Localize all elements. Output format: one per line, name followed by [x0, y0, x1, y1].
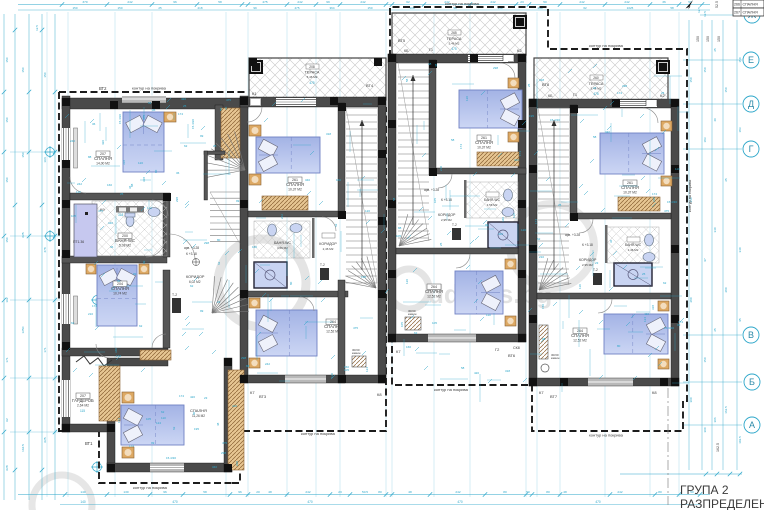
- svg-text:420: 420: [474, 371, 479, 375]
- svg-text:58: 58: [218, 0, 222, 4]
- svg-text:195: 195: [194, 427, 199, 431]
- svg-text:СПАЛНЯ: СПАЛНЯ: [94, 156, 112, 161]
- svg-text:96: 96: [238, 490, 242, 494]
- svg-text:ВТ5: ВТ5: [398, 38, 406, 43]
- svg-text:110: 110: [675, 167, 680, 171]
- svg-text:420: 420: [181, 97, 186, 101]
- svg-text:420: 420: [644, 312, 649, 316]
- svg-text:88: 88: [398, 226, 402, 230]
- svg-text:171: 171: [43, 347, 47, 352]
- svg-text:174: 174: [652, 192, 657, 196]
- svg-text:140: 140: [80, 500, 86, 504]
- svg-text:102.5: 102.5: [738, 436, 742, 444]
- svg-text:48: 48: [408, 490, 412, 494]
- svg-text:25: 25: [713, 48, 717, 52]
- svg-text:174: 174: [459, 144, 463, 149]
- svg-text:260: 260: [593, 76, 599, 80]
- svg-text:120: 120: [521, 228, 526, 232]
- svg-text:183: 183: [738, 127, 742, 132]
- svg-text:62: 62: [5, 418, 9, 422]
- svg-text:475: 475: [222, 441, 227, 445]
- svg-text:364: 364: [329, 6, 334, 10]
- svg-text:174: 174: [117, 418, 121, 423]
- svg-text:242: 242: [127, 0, 132, 4]
- svg-text:Т-2: Т-2: [593, 268, 598, 272]
- svg-text:1025: 1025: [627, 6, 634, 10]
- svg-text:96: 96: [173, 0, 177, 4]
- svg-text:208: 208: [309, 65, 315, 69]
- svg-text:62: 62: [414, 331, 418, 335]
- svg-text:ВТ4: ВТ4: [366, 83, 374, 88]
- svg-text:218: 218: [197, 6, 202, 10]
- svg-text:62: 62: [406, 0, 410, 4]
- svg-text:105: 105: [400, 322, 404, 327]
- svg-text:266: 266: [734, 3, 740, 7]
- svg-text:163: 163: [43, 157, 47, 162]
- svg-text:контур на покрива: контур на покрива: [589, 43, 624, 48]
- svg-text:48: 48: [268, 490, 272, 494]
- svg-text:105: 105: [344, 368, 349, 372]
- svg-text:340: 340: [305, 178, 310, 182]
- svg-text:120: 120: [365, 209, 370, 213]
- svg-text:контур на покрива: контур на покрива: [434, 387, 469, 392]
- svg-text:5,46 М2: 5,46 М2: [307, 75, 318, 79]
- svg-text:23: 23: [520, 0, 524, 4]
- svg-text:К +3.18: К +3.18: [441, 198, 452, 202]
- svg-text:15.4/30: 15.4/30: [550, 118, 560, 122]
- svg-text:62: 62: [663, 281, 667, 285]
- svg-text:174: 174: [178, 112, 183, 116]
- svg-text:150: 150: [724, 87, 728, 92]
- svg-text:Б: Б: [749, 377, 755, 387]
- svg-text:36: 36: [117, 279, 121, 283]
- svg-text:10,37 М2: 10,37 М2: [623, 191, 637, 195]
- svg-text:62: 62: [184, 144, 188, 148]
- svg-text:арв. +3.28: арв. +3.28: [565, 233, 580, 237]
- svg-text:80: 80: [546, 490, 550, 494]
- svg-text:99: 99: [253, 6, 257, 10]
- svg-text:150: 150: [703, 67, 707, 72]
- svg-text:80: 80: [289, 281, 293, 285]
- svg-text:Г1: Г1: [573, 93, 577, 97]
- svg-text:318: 318: [122, 160, 126, 165]
- svg-text:ВТ6: ВТ6: [508, 353, 516, 358]
- svg-text:КБ: КБ: [548, 94, 553, 98]
- svg-text:14,00 М2: 14,00 М2: [96, 162, 110, 166]
- svg-text:242: 242: [455, 490, 460, 494]
- svg-text:25: 25: [183, 104, 187, 108]
- svg-text:475: 475: [353, 326, 358, 330]
- svg-text:150: 150: [367, 6, 372, 10]
- svg-text:242: 242: [490, 0, 495, 4]
- svg-text:242: 242: [77, 182, 82, 186]
- svg-text:80: 80: [617, 344, 621, 348]
- svg-text:48: 48: [563, 490, 567, 494]
- svg-text:265: 265: [451, 31, 457, 35]
- svg-text:К7: К7: [539, 390, 544, 395]
- svg-text:162.5: 162.5: [21, 444, 25, 452]
- svg-text:К1: К1: [252, 91, 257, 96]
- svg-text:340: 340: [498, 232, 503, 236]
- svg-text:БАНЯ-WC: БАНЯ-WC: [115, 238, 135, 243]
- svg-text:25: 25: [713, 328, 717, 332]
- svg-text:36: 36: [609, 239, 613, 243]
- svg-text:242: 242: [579, 0, 584, 4]
- svg-text:25: 25: [724, 178, 728, 182]
- svg-text:210: 210: [439, 166, 443, 171]
- svg-text:80: 80: [658, 490, 662, 494]
- svg-text:340: 340: [114, 348, 118, 353]
- svg-text:2,46 М2: 2,46 М2: [323, 247, 334, 251]
- svg-text:150: 150: [689, 77, 693, 82]
- svg-text:162: 162: [5, 297, 9, 302]
- svg-text:160: 160: [336, 178, 341, 182]
- svg-text:174: 174: [534, 219, 538, 224]
- svg-text:242: 242: [265, 362, 270, 366]
- svg-text:267: 267: [734, 11, 740, 15]
- svg-text:300: 300: [703, 427, 707, 432]
- svg-text:340: 340: [713, 227, 717, 232]
- svg-text:23: 23: [595, 261, 599, 265]
- svg-text:120: 120: [330, 373, 334, 378]
- svg-text:280: 280: [724, 287, 728, 292]
- svg-text:150: 150: [5, 177, 9, 182]
- svg-text:370: 370: [82, 0, 87, 4]
- svg-text:475: 475: [309, 81, 315, 85]
- svg-text:Г1: Г1: [429, 48, 433, 52]
- svg-text:3,56 М2: 3,56 М2: [487, 203, 498, 207]
- svg-text:242: 242: [624, 0, 629, 4]
- svg-text:Е: Е: [748, 55, 754, 65]
- svg-text:В: В: [748, 330, 754, 340]
- svg-text:475: 475: [664, 209, 669, 213]
- svg-text:1250: 1250: [21, 326, 25, 333]
- svg-text:СПАЛНЯ: СПАЛНЯ: [743, 3, 759, 7]
- svg-text:88: 88: [130, 183, 134, 187]
- svg-text:470: 470: [172, 500, 178, 504]
- svg-text:Д: Д: [748, 99, 754, 109]
- svg-text:62: 62: [71, 321, 75, 325]
- svg-text:150: 150: [5, 117, 9, 122]
- svg-text:210: 210: [88, 312, 93, 316]
- svg-text:242: 242: [360, 0, 365, 4]
- svg-text:36: 36: [662, 0, 666, 4]
- svg-text:Т-2: Т-2: [320, 263, 325, 267]
- svg-text:105: 105: [432, 321, 437, 325]
- svg-text:105: 105: [396, 234, 401, 238]
- svg-text:12.5: 12.5: [35, 25, 39, 31]
- svg-text:10,74 М2: 10,74 М2: [113, 292, 127, 296]
- svg-text:62: 62: [139, 324, 143, 328]
- svg-text:58: 58: [451, 138, 455, 142]
- svg-text:50.5: 50.5: [362, 490, 368, 494]
- svg-text:2,64 М2: 2,64 М2: [77, 404, 89, 408]
- svg-text:20: 20: [256, 490, 260, 494]
- svg-text:88: 88: [246, 364, 250, 368]
- svg-text:контур на покрива: контур на покрива: [589, 433, 624, 438]
- svg-text:80: 80: [503, 490, 507, 494]
- svg-text:420: 420: [190, 395, 195, 399]
- svg-text:95: 95: [738, 318, 742, 322]
- svg-text:3,66 М2: 3,66 М2: [277, 246, 288, 250]
- svg-text:242: 242: [280, 214, 284, 219]
- svg-text:105: 105: [433, 198, 437, 203]
- svg-text:298: 298: [652, 197, 656, 202]
- svg-text:контур на покрива: контур на покрива: [301, 431, 336, 436]
- svg-text:150: 150: [5, 237, 9, 242]
- svg-text:110: 110: [161, 416, 166, 420]
- svg-text:58: 58: [670, 6, 674, 10]
- svg-text:195: 195: [361, 275, 366, 279]
- svg-text:контур на покрива: контур на покрива: [132, 86, 167, 91]
- svg-text:К +3.18: К +3.18: [582, 243, 593, 247]
- svg-text:340: 340: [605, 130, 610, 134]
- svg-text:15.4/30: 15.4/30: [667, 200, 677, 204]
- svg-text:298: 298: [204, 241, 209, 245]
- svg-text:210: 210: [539, 255, 544, 259]
- svg-text:5,46 М2: 5,46 М2: [449, 42, 460, 46]
- svg-text:183: 183: [703, 137, 707, 142]
- svg-text:К2: К2: [517, 48, 522, 53]
- svg-text:174: 174: [92, 304, 97, 308]
- svg-text:2,95 М2: 2,95 М2: [582, 263, 593, 267]
- svg-text:150: 150: [696, 36, 700, 42]
- svg-text:478: 478: [43, 247, 47, 252]
- svg-text:99: 99: [142, 260, 146, 264]
- svg-text:110: 110: [512, 213, 516, 218]
- svg-text:62: 62: [583, 6, 587, 10]
- svg-text:12,52 М2: 12,52 М2: [427, 295, 441, 299]
- svg-text:298: 298: [622, 84, 627, 88]
- svg-text:318: 318: [326, 132, 331, 136]
- svg-text:КБ: КБ: [404, 49, 409, 53]
- svg-text:99: 99: [677, 323, 681, 327]
- svg-text:36: 36: [224, 106, 228, 110]
- svg-text:12.5: 12.5: [697, 7, 701, 13]
- svg-text:62: 62: [172, 426, 176, 430]
- svg-text:25: 25: [213, 144, 217, 148]
- svg-text:174: 174: [179, 394, 184, 398]
- svg-text:130: 130: [123, 490, 128, 494]
- svg-text:12.5: 12.5: [703, 11, 707, 17]
- svg-text:58: 58: [203, 490, 207, 494]
- svg-text:ТЕРАСА: ТЕРАСА: [447, 37, 462, 41]
- svg-text:62: 62: [537, 237, 541, 241]
- svg-text:48: 48: [428, 62, 432, 66]
- svg-text:99: 99: [200, 134, 204, 138]
- svg-text:БАНЯ-WC: БАНЯ-WC: [274, 241, 291, 245]
- svg-text:К8: К8: [377, 392, 382, 397]
- svg-text:30/30: 30/30: [551, 353, 559, 357]
- svg-text:ВТ7: ВТ7: [550, 394, 558, 399]
- svg-text:120: 120: [465, 96, 469, 101]
- svg-text:БАНЯ-WC: БАНЯ-WC: [625, 243, 642, 247]
- svg-text:110: 110: [76, 190, 81, 194]
- svg-text:475: 475: [294, 6, 299, 10]
- svg-text:ТЕРАСА: ТЕРАСА: [305, 71, 320, 75]
- svg-text:99: 99: [236, 199, 240, 203]
- svg-text:420: 420: [101, 140, 105, 145]
- svg-text:150: 150: [72, 6, 77, 10]
- svg-text:ГАРДЕРОБ: ГАРДЕРОБ: [72, 398, 94, 403]
- svg-text:318: 318: [505, 369, 510, 373]
- svg-text:КОРИДОР: КОРИДОР: [319, 242, 337, 246]
- svg-text:174: 174: [617, 91, 622, 95]
- svg-text:контур на покрива: контур на покрива: [445, 1, 480, 6]
- svg-text:110: 110: [578, 284, 582, 289]
- svg-text:300: 300: [689, 397, 693, 402]
- svg-text:80: 80: [217, 238, 221, 242]
- svg-text:К7: К7: [250, 390, 255, 395]
- svg-text:97: 97: [703, 258, 707, 262]
- svg-text:ВТ3: ВТ3: [259, 394, 267, 399]
- svg-text:23: 23: [204, 396, 208, 400]
- svg-text:58: 58: [461, 366, 465, 370]
- svg-text:298: 298: [235, 461, 239, 466]
- svg-text:150: 150: [541, 304, 545, 309]
- svg-text:52.5: 52.5: [715, 1, 719, 8]
- svg-text:25: 25: [527, 83, 531, 87]
- svg-text:Т-2: Т-2: [172, 293, 177, 297]
- svg-text:3,46 М2: 3,46 М2: [628, 248, 639, 252]
- svg-text:420: 420: [232, 404, 237, 408]
- svg-text:105: 105: [146, 417, 151, 421]
- svg-text:10,37 М2: 10,37 М2: [288, 188, 302, 192]
- svg-text:298: 298: [221, 451, 226, 455]
- svg-text:242: 242: [70, 139, 75, 143]
- svg-text:Т-2: Т-2: [452, 223, 457, 227]
- svg-text:150: 150: [21, 67, 25, 72]
- svg-text:ВТ1: ВТ1: [85, 441, 93, 446]
- svg-text:58: 58: [593, 135, 597, 139]
- svg-text:15.4/30: 15.4/30: [664, 326, 674, 330]
- svg-text:140: 140: [80, 490, 85, 494]
- svg-text:99: 99: [133, 272, 137, 276]
- svg-text:36: 36: [110, 245, 114, 249]
- svg-text:195: 195: [529, 114, 534, 118]
- svg-text:62: 62: [190, 284, 194, 288]
- svg-text:340: 340: [108, 221, 113, 225]
- svg-text:174: 174: [129, 444, 134, 448]
- svg-text:124: 124: [156, 421, 161, 425]
- svg-text:15.4/30: 15.4/30: [191, 119, 195, 129]
- svg-text:36: 36: [92, 122, 96, 126]
- svg-text:15.4/30: 15.4/30: [118, 114, 122, 124]
- svg-text:СПАЛНЯ: СПАЛНЯ: [571, 333, 589, 338]
- svg-text:150: 150: [117, 6, 122, 10]
- svg-text:СК8: СК8: [513, 346, 520, 350]
- svg-text:150: 150: [703, 357, 707, 362]
- svg-text:160: 160: [252, 245, 257, 249]
- svg-text:475: 475: [593, 92, 599, 96]
- svg-text:150: 150: [21, 152, 25, 157]
- svg-text:48: 48: [434, 63, 438, 67]
- svg-text:25: 25: [558, 203, 562, 207]
- svg-text:К8: К8: [652, 390, 657, 395]
- svg-text:242: 242: [297, 0, 302, 4]
- svg-text:25: 25: [661, 91, 665, 95]
- svg-text:48: 48: [216, 422, 220, 426]
- svg-text:58: 58: [219, 107, 223, 111]
- svg-text:99: 99: [485, 223, 489, 227]
- svg-text:50: 50: [526, 490, 530, 494]
- svg-text:РАЗПРЕДЕЛЕНИЕ: РАЗПРЕДЕЛЕНИЕ: [680, 497, 764, 510]
- svg-text:К +3.18: К +3.18: [186, 252, 197, 256]
- svg-text:62: 62: [217, 261, 221, 265]
- svg-text:Г: Г: [749, 144, 754, 154]
- svg-text:25: 25: [642, 272, 646, 276]
- svg-text:СПАЛНЯ: СПАЛНЯ: [425, 289, 443, 294]
- svg-text:340: 340: [212, 465, 217, 469]
- svg-text:475: 475: [451, 47, 457, 51]
- svg-text:25: 25: [439, 242, 443, 246]
- svg-text:30/30: 30/30: [408, 309, 416, 313]
- svg-text:62: 62: [161, 410, 165, 414]
- svg-text:25: 25: [120, 192, 124, 196]
- svg-text:120: 120: [138, 161, 143, 165]
- svg-text:115: 115: [80, 409, 85, 413]
- svg-text:298: 298: [241, 356, 246, 360]
- svg-text:ВТ8: ВТ8: [542, 82, 550, 87]
- svg-text:160: 160: [406, 345, 411, 349]
- svg-text:298: 298: [175, 197, 179, 202]
- svg-text:58: 58: [405, 78, 409, 82]
- svg-text:99: 99: [326, 0, 330, 4]
- svg-text:СПАЛНЯ: СПАЛНЯ: [286, 182, 304, 187]
- svg-text:475: 475: [98, 209, 103, 213]
- svg-text:СПАЛНЯ: СПАЛНЯ: [475, 140, 493, 145]
- svg-text:80: 80: [154, 169, 158, 173]
- svg-text:470: 470: [307, 500, 313, 504]
- svg-text:318: 318: [651, 305, 655, 310]
- svg-text:2,95 М2: 2,95 М2: [441, 218, 452, 222]
- svg-text:124: 124: [643, 317, 647, 322]
- svg-text:124: 124: [365, 367, 369, 372]
- svg-text:475: 475: [226, 98, 231, 102]
- svg-text:298: 298: [493, 66, 498, 70]
- svg-text:628: 628: [5, 465, 9, 470]
- svg-text:12,52 М2: 12,52 М2: [573, 339, 587, 343]
- svg-text:105: 105: [71, 214, 76, 218]
- svg-text:10,37 М2: 10,37 М2: [477, 146, 491, 150]
- svg-text:150: 150: [5, 57, 9, 62]
- svg-text:80: 80: [192, 411, 196, 415]
- svg-text:СПАЛНЯ: СПАЛНЯ: [111, 286, 129, 291]
- svg-text:280: 280: [689, 297, 693, 302]
- svg-text:36: 36: [152, 108, 156, 112]
- svg-text:25: 25: [158, 6, 162, 10]
- svg-text:контур на покрива: контур на покрива: [133, 485, 168, 490]
- svg-text:58: 58: [392, 197, 396, 201]
- svg-text:ВТ2: ВТ2: [99, 86, 107, 91]
- svg-text:162.5: 162.5: [724, 406, 728, 414]
- svg-text:160: 160: [107, 183, 112, 187]
- svg-text:36: 36: [176, 171, 180, 175]
- svg-text:110: 110: [147, 206, 152, 210]
- svg-text:150: 150: [717, 36, 721, 42]
- svg-text:88: 88: [88, 155, 92, 159]
- svg-text:контур на покрива: контур на покрива: [688, 179, 692, 212]
- svg-text:120: 120: [405, 279, 409, 284]
- svg-text:318: 318: [142, 177, 146, 182]
- svg-text:150: 150: [43, 72, 47, 77]
- svg-text:50: 50: [543, 0, 547, 4]
- svg-text:318: 318: [118, 213, 124, 217]
- svg-text:171: 171: [5, 357, 9, 362]
- svg-text:30/30: 30/30: [352, 348, 360, 352]
- svg-text:62: 62: [334, 223, 338, 227]
- svg-text:А: А: [749, 420, 755, 430]
